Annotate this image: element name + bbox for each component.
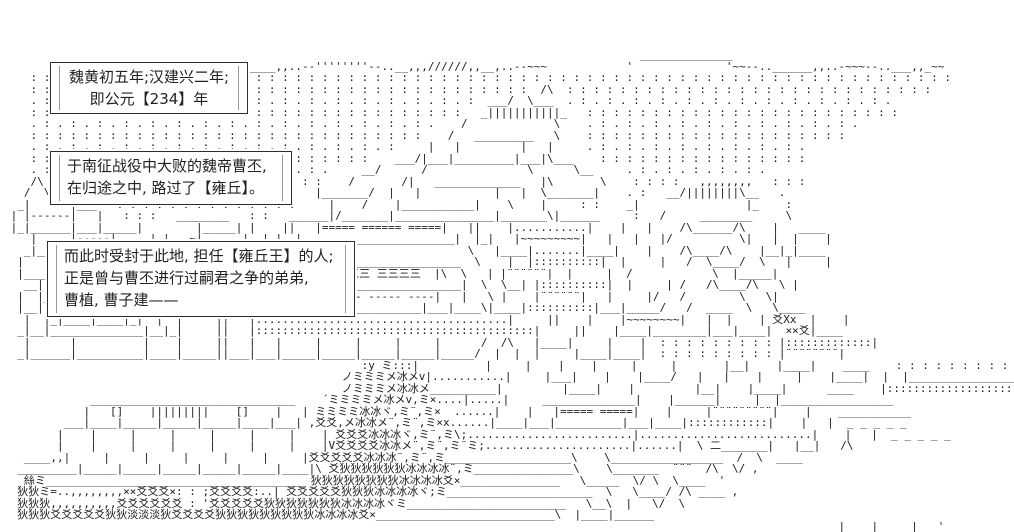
- dialog-text-line: 魏黄初五年;汉建兴二年;: [67, 66, 231, 88]
- dialog-box-narration-2: 而此时受封于此地, 担任【雍丘王】的人; 正是曾与曹丕进行过嗣君之争的弟弟, 曹…: [47, 241, 355, 317]
- dialog-box-narration-2-inner: 而此时受封于此地, 担任【雍丘王】的人; 正是曾与曹丕进行过嗣君之争的弟弟, 曹…: [56, 245, 346, 313]
- dialog-box-year-inner: 魏黄初五年;汉建兴二年; 即公元【234】年: [59, 66, 239, 110]
- dialog-box-narration-1: 于南征战役中大败的魏帝曹丕, 在归途之中, 路过了【雍丘】。: [50, 151, 292, 205]
- dialog-text-line: 即公元【234】年: [67, 88, 231, 110]
- dialog-text-line: 曹植, 曹子建——: [64, 289, 338, 311]
- aa-scene: ______________ ,,,, ____ ________,,..--'…: [0, 0, 1014, 532]
- dialog-box-year: 魏黄初五年;汉建兴二年; 即公元【234】年: [50, 62, 248, 114]
- dialog-box-narration-1-inner: 于南征战役中大败的魏帝曹丕, 在归途之中, 路过了【雍丘】。: [59, 155, 283, 201]
- dialog-text-line: 正是曾与曹丕进行过嗣君之争的弟弟,: [64, 267, 338, 289]
- dialog-text-line: 在归途之中, 路过了【雍丘】。: [67, 177, 275, 199]
- dialog-text-line: 于南征战役中大败的魏帝曹丕,: [67, 155, 275, 177]
- dialog-text-line: 而此时受封于此地, 担任【雍丘王】的人;: [64, 245, 338, 267]
